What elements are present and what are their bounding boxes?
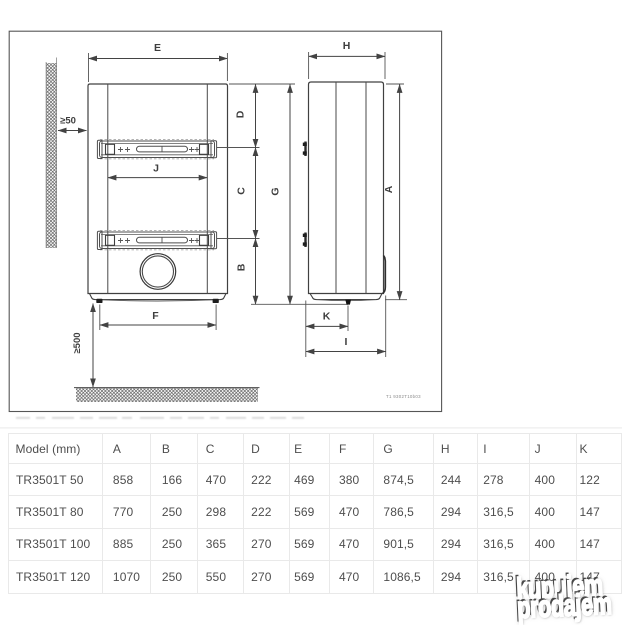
svg-text:B: B bbox=[236, 263, 248, 271]
svg-text:J: J bbox=[153, 163, 159, 175]
svg-text:H: H bbox=[343, 40, 351, 52]
svg-text:E: E bbox=[154, 42, 161, 54]
svg-text:≥50: ≥50 bbox=[60, 116, 76, 127]
svg-text:G: G bbox=[270, 187, 282, 195]
svg-text:F: F bbox=[152, 310, 159, 322]
svg-text:A: A bbox=[383, 185, 395, 193]
svg-text:D: D bbox=[235, 110, 247, 118]
svg-text:T1 9302T10b03: T1 9302T10b03 bbox=[386, 394, 421, 399]
svg-text:≥500: ≥500 bbox=[72, 332, 83, 353]
svg-text:C: C bbox=[236, 187, 248, 195]
svg-text:I: I bbox=[345, 336, 348, 348]
svg-text:K: K bbox=[323, 311, 331, 323]
